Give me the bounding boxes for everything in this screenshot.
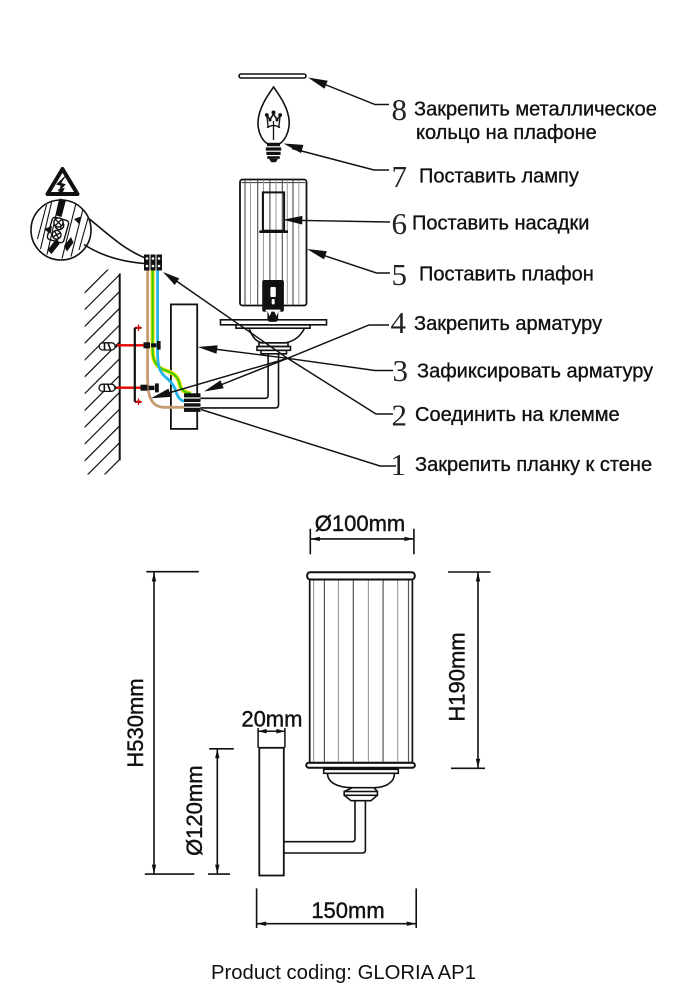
svg-text:Ø120mm: Ø120mm bbox=[182, 765, 207, 855]
svg-text:3: 3 bbox=[393, 353, 409, 388]
svg-text:4: 4 bbox=[391, 305, 407, 340]
svg-text:Закрепить металлическое: Закрепить металлическое bbox=[414, 99, 657, 121]
svg-text:150mm: 150mm bbox=[311, 898, 384, 923]
svg-text:Поставить плафон: Поставить плафон bbox=[419, 264, 594, 286]
svg-text:кольцо на плафоне: кольцо на плафоне bbox=[416, 122, 597, 144]
svg-text:Product coding: GLORIA AP1: Product coding: GLORIA AP1 bbox=[211, 962, 476, 984]
svg-text:20mm: 20mm bbox=[241, 707, 302, 732]
svg-text:6: 6 bbox=[392, 206, 408, 241]
svg-text:Ø100mm: Ø100mm bbox=[315, 511, 405, 536]
svg-text:8: 8 bbox=[392, 92, 408, 127]
svg-text:2: 2 bbox=[392, 398, 408, 433]
svg-text:Закрепить арматуру: Закрепить арматуру bbox=[414, 313, 602, 335]
svg-text:Поставить лампу: Поставить лампу bbox=[419, 166, 579, 188]
svg-text:Поставить насадки: Поставить насадки bbox=[412, 213, 589, 235]
svg-text:5: 5 bbox=[392, 257, 408, 292]
svg-text:Соединить на клемме: Соединить на клемме bbox=[415, 404, 620, 426]
svg-text:H190mm: H190mm bbox=[445, 632, 470, 721]
svg-text:Закрепить планку к стене: Закрепить планку к стене bbox=[415, 454, 652, 476]
svg-text:1: 1 bbox=[391, 447, 407, 482]
svg-text:7: 7 bbox=[392, 159, 408, 194]
svg-text:H530mm: H530mm bbox=[123, 678, 148, 767]
svg-text:Зафиксировать арматуру: Зафиксировать арматуру bbox=[417, 361, 653, 383]
